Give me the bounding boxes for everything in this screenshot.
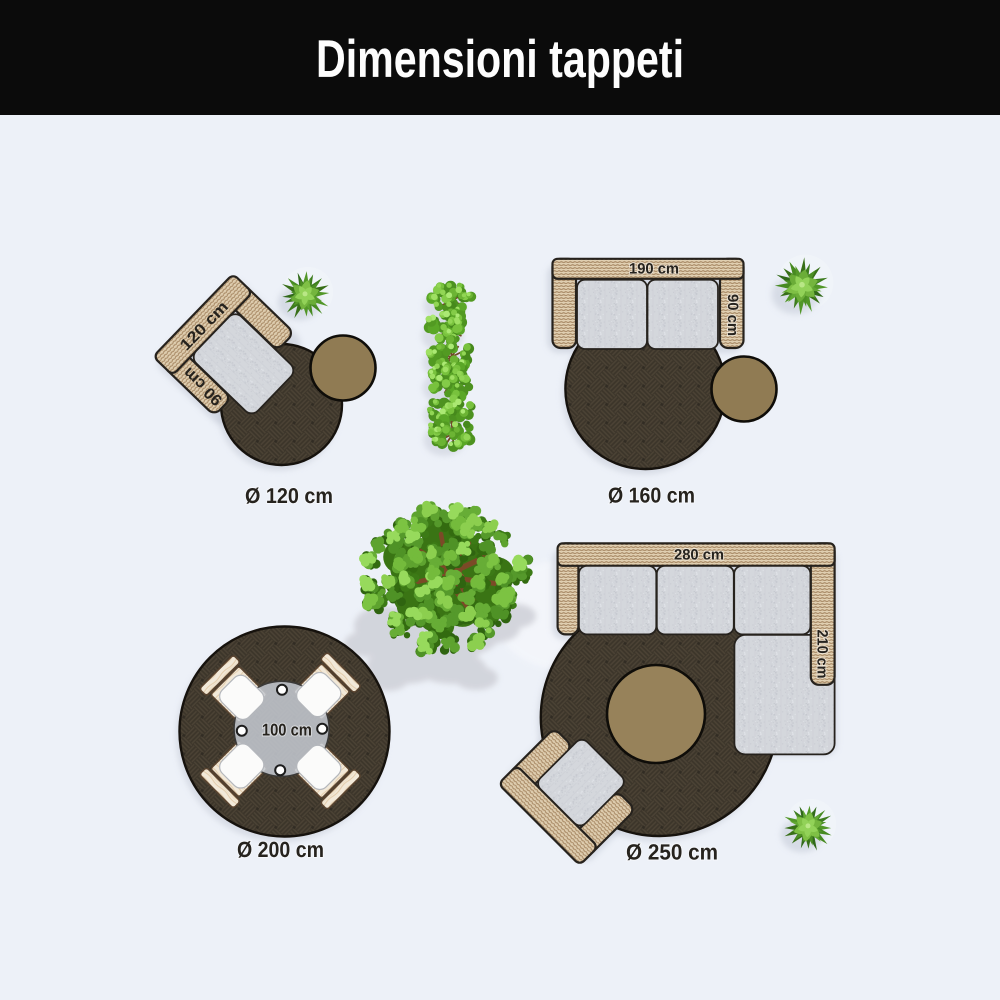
svg-text:90 cm: 90 cm [724,294,741,336]
svg-text:Ø 200 cm: Ø 200 cm [237,837,324,862]
svg-text:210 cm: 210 cm [814,630,831,679]
svg-text:280 cm: 280 cm [674,546,724,563]
svg-text:Ø 160 cm: Ø 160 cm [608,483,695,507]
svg-text:100 cm: 100 cm [262,720,312,739]
svg-text:Dimensioni tappeti: Dimensioni tappeti [316,30,684,89]
svg-text:Ø 250 cm: Ø 250 cm [626,839,718,864]
svg-text:190 cm: 190 cm [629,260,679,277]
svg-text:Ø 120 cm: Ø 120 cm [245,484,333,508]
